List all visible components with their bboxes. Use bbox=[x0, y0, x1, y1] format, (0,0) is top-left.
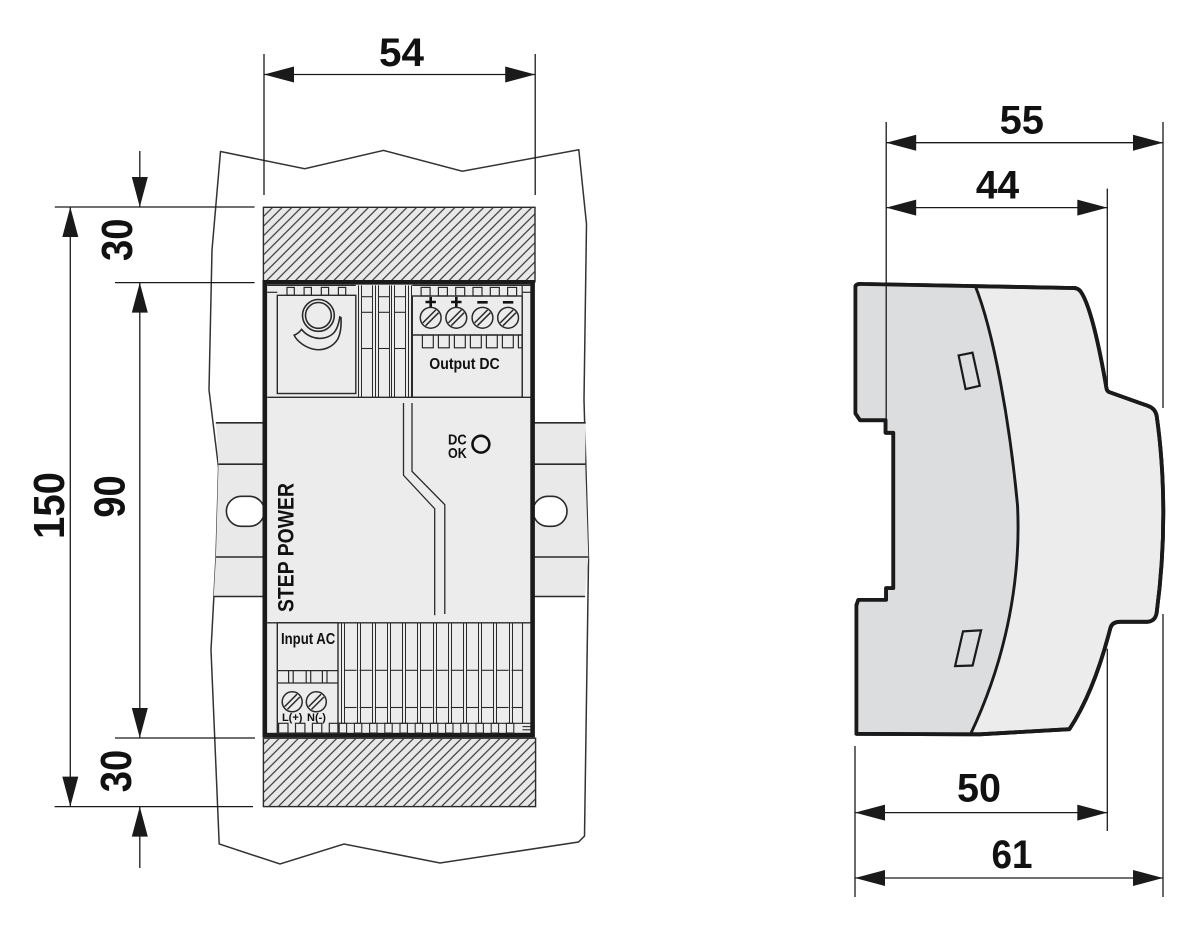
svg-text:55: 55 bbox=[1000, 98, 1044, 142]
svg-text:90: 90 bbox=[86, 475, 135, 518]
svg-text:30: 30 bbox=[92, 750, 141, 793]
svg-text:Input AC: Input AC bbox=[281, 631, 335, 648]
svg-text:44: 44 bbox=[976, 163, 1020, 207]
svg-text:61: 61 bbox=[992, 833, 1033, 877]
svg-text:OK: OK bbox=[448, 445, 467, 462]
svg-text:150: 150 bbox=[25, 472, 74, 539]
svg-text:50: 50 bbox=[957, 767, 1001, 811]
svg-text:Output DC: Output DC bbox=[429, 356, 500, 373]
svg-text:30: 30 bbox=[93, 219, 142, 261]
svg-text:STEP POWER: STEP POWER bbox=[274, 483, 299, 612]
svg-text:54: 54 bbox=[379, 31, 425, 75]
svg-text:L(+): L(+) bbox=[282, 712, 303, 724]
svg-text:N(-): N(-) bbox=[307, 712, 326, 724]
